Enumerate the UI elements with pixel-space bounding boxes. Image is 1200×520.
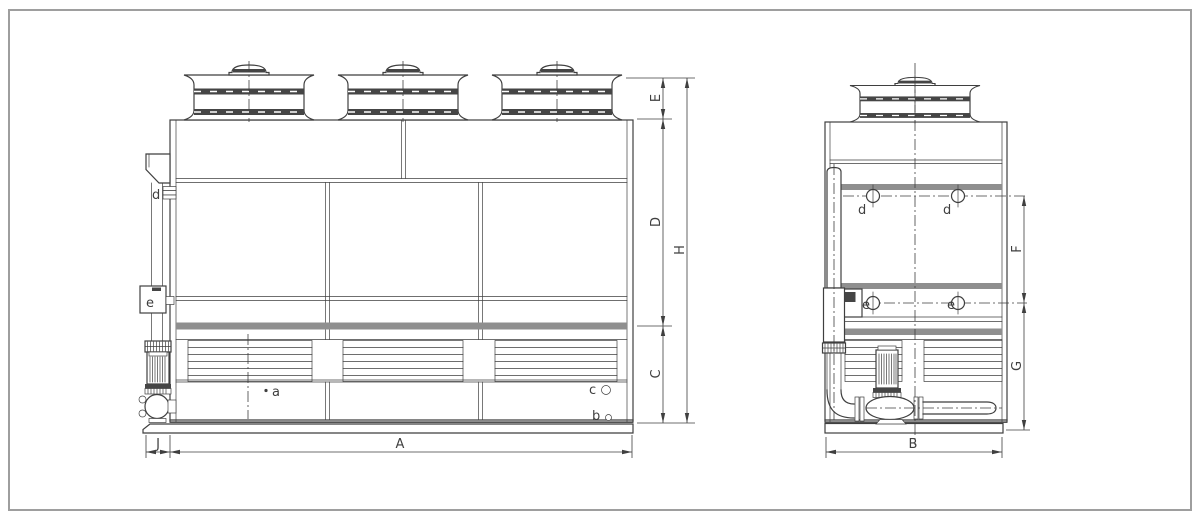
dim-A-label: A: [396, 437, 405, 452]
dim-G-label: G: [1010, 361, 1025, 371]
dim-J-label: J: [155, 437, 160, 452]
drawing-sheet: a c b d e: [0, 0, 1200, 520]
port-label-a: a: [272, 385, 280, 400]
dim-E-label: E: [649, 94, 664, 102]
port-d-fitting: [163, 187, 176, 191]
port-label-b: b: [592, 409, 600, 424]
port-c-circle: [602, 386, 611, 395]
dim-B-label: B: [909, 437, 918, 452]
dim-F-label: F: [1010, 245, 1025, 252]
dim-C-label: C: [649, 369, 664, 378]
port-b-circle: [606, 415, 612, 421]
port-label-d-front: d: [152, 188, 160, 203]
port-label-c: c: [589, 383, 596, 398]
front-view: a c b d e: [139, 61, 633, 433]
port-label-e-side-1: e: [862, 298, 870, 313]
cooling-tower-drawing: a c b d e: [0, 0, 1200, 520]
dim-H-label: H: [673, 245, 688, 255]
side-base-rail: [825, 424, 1003, 434]
port-label-d-side-2: d: [943, 203, 951, 218]
port-a-mark: [264, 389, 267, 392]
front-base-rail: [143, 424, 633, 433]
front-louver-panels: [188, 341, 617, 382]
pump-volute-front: [145, 395, 169, 419]
port-label-e-front: e: [146, 296, 154, 311]
dim-D-label: D: [649, 217, 664, 227]
port-label-d-side-1: d: [858, 203, 866, 218]
front-casing-band: [176, 323, 627, 330]
port-label-e-side-2: e: [947, 298, 955, 313]
